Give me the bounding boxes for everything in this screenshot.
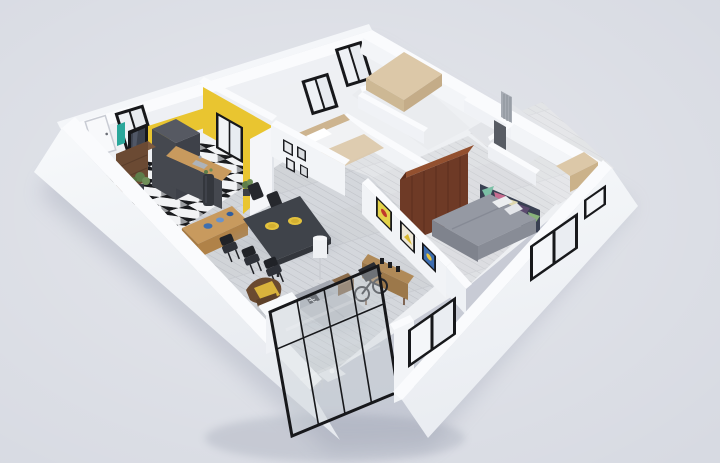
blue-bowl <box>204 223 213 229</box>
blue-bowl <box>227 212 234 216</box>
decor-object <box>380 258 384 264</box>
floorplan-render <box>0 0 720 463</box>
kitchen-faucet <box>199 156 202 159</box>
floorplan-svg <box>0 0 720 463</box>
blue-bowl <box>216 218 224 223</box>
coat-towel <box>117 122 125 146</box>
decor-object <box>388 262 392 268</box>
decor-object <box>396 266 400 272</box>
